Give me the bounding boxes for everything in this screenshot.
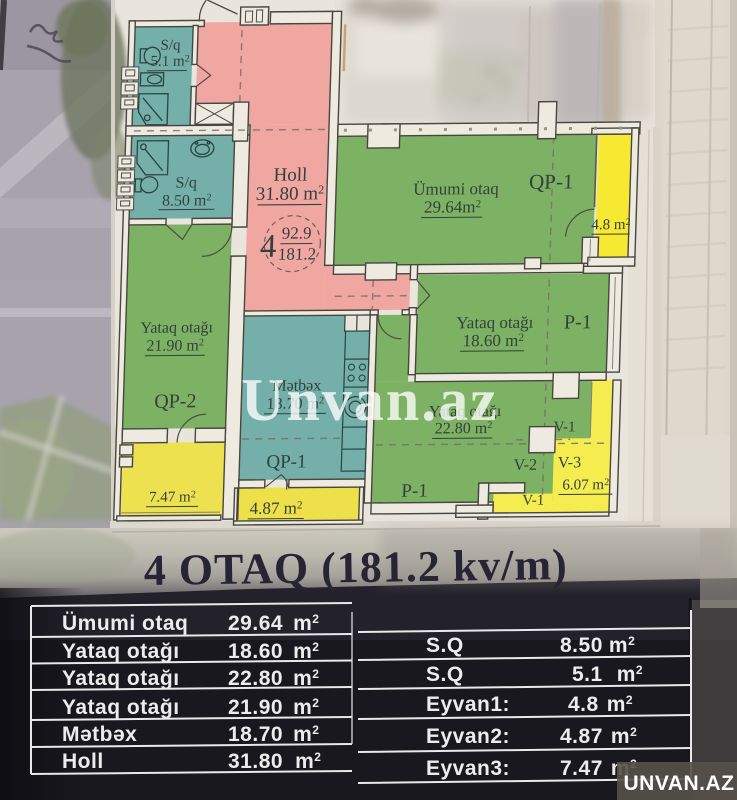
svg-text:4.87m2: 4.87m2 [560, 725, 637, 748]
svg-text:S/q: S/q [160, 38, 181, 54]
svg-text:UNVAN.AZ: UNVAN.AZ [624, 772, 735, 795]
svg-text:31.80m2: 31.80m2 [228, 750, 321, 773]
svg-text:Eyvan2:: Eyvan2: [426, 725, 510, 748]
svg-text:Yataq otağı: Yataq otağı [456, 313, 534, 333]
svg-text:29.64m2: 29.64m2 [228, 612, 319, 635]
svg-text:181.2: 181.2 [278, 244, 317, 263]
svg-text:QP-1: QP-1 [529, 169, 574, 193]
svg-text:Holl: Holl [62, 750, 104, 773]
svg-text:Yataq otağı: Yataq otağı [62, 667, 180, 690]
svg-text:4: 4 [259, 229, 277, 265]
svg-text:Mətbəx: Mətbəx [62, 723, 137, 746]
svg-text:V-1: V-1 [522, 493, 544, 509]
svg-text:8.50 m2: 8.50 m2 [162, 192, 212, 209]
svg-text:QP-2: QP-2 [154, 390, 197, 412]
svg-text:29.64m2: 29.64m2 [424, 197, 482, 216]
svg-text:V-2: V-2 [513, 457, 537, 474]
svg-text:S.Q: S.Q [426, 634, 464, 657]
svg-text:S.Q: S.Q [426, 663, 464, 686]
svg-text:Eyvan1:: Eyvan1: [426, 693, 510, 716]
svg-text:18.70m2: 18.70m2 [228, 723, 319, 746]
svg-text:4.87 m2: 4.87 m2 [249, 499, 302, 518]
svg-text:8.50m2: 8.50m2 [560, 634, 635, 657]
svg-text:22.80m2: 22.80m2 [228, 667, 319, 690]
svg-text:18.60 m2: 18.60 m2 [462, 331, 524, 350]
svg-text:5.1 m2: 5.1 m2 [150, 53, 190, 69]
svg-text:V-3: V-3 [557, 454, 581, 471]
svg-text:S/q: S/q [175, 174, 197, 191]
svg-text:6.07 m2: 6.07 m2 [562, 477, 609, 493]
svg-text:4.8 m2: 4.8 m2 [591, 217, 631, 233]
svg-text:Ümumi otaq: Ümumi otaq [413, 179, 500, 199]
svg-text:4 OTAQ (181.2 kv/m): 4 OTAQ (181.2 kv/m) [143, 540, 568, 595]
svg-text:Yataq otağı: Yataq otağı [140, 319, 214, 337]
svg-text:QP-1: QP-1 [266, 451, 307, 472]
svg-text:31.80 m2: 31.80 m2 [255, 182, 324, 205]
svg-text:Yataq otağı: Yataq otağı [62, 640, 180, 663]
svg-text:Ümumi otaq: Ümumi otaq [62, 612, 188, 635]
svg-text:92.9: 92.9 [282, 224, 312, 243]
svg-text:21.90m2: 21.90m2 [228, 696, 319, 719]
svg-text:Unvan.az: Unvan.az [241, 367, 499, 433]
svg-text:P-1: P-1 [564, 311, 592, 333]
svg-text:21.90 m2: 21.90 m2 [146, 337, 204, 354]
svg-text:7.47 m2: 7.47 m2 [149, 489, 196, 505]
svg-text:V-1: V-1 [553, 419, 575, 435]
svg-text:P-1: P-1 [401, 481, 428, 502]
svg-text:Yataq otağı: Yataq otağı [62, 696, 180, 719]
svg-text:18.60m2: 18.60m2 [228, 640, 319, 663]
svg-text:Eyvan3:: Eyvan3: [426, 757, 510, 780]
